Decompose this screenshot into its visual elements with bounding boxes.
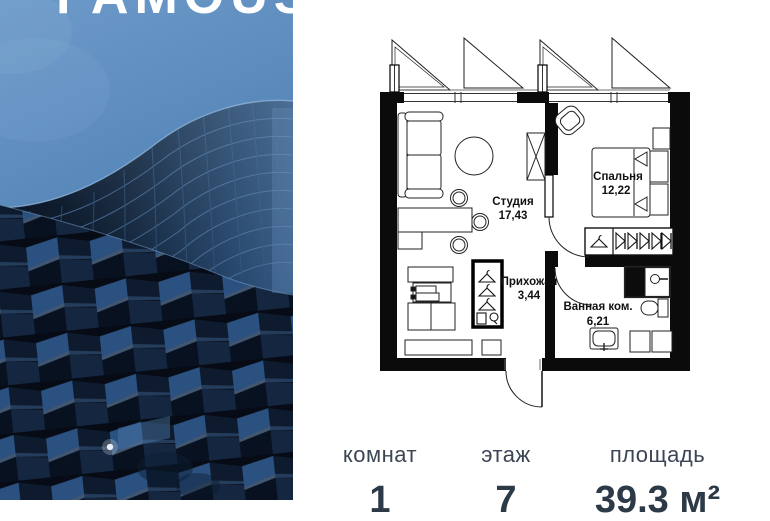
sun-glint [107, 444, 113, 450]
stat-area-value: 39.3 м² [570, 481, 745, 519]
room-label-bedroom: Спальня [593, 171, 643, 183]
toilet-tank [658, 299, 668, 317]
room-label-bath: Ванная ком. [563, 301, 632, 313]
studio-furniture [398, 112, 545, 254]
room-label-studio: Студия [492, 196, 533, 208]
stat-rooms-value: 1 [310, 481, 450, 519]
toilet [641, 301, 658, 315]
desk [398, 208, 472, 232]
kitchen-counter [405, 340, 472, 355]
stat-rooms: комнат 1 [310, 443, 450, 519]
hall-bench [482, 340, 501, 355]
building-photo: FAMOUS [0, 0, 293, 500]
entry-door [505, 359, 542, 407]
floor-plan: Студия 17,43 Спальня 12,22 Прихожая 3,44… [355, 25, 705, 445]
stat-area: площадь 39.3 м² [570, 443, 745, 519]
pocket-door [545, 175, 553, 217]
bedroom-furniture [552, 103, 670, 217]
bedroom-wardrobe [585, 228, 673, 255]
window-swing-triangles [390, 38, 670, 92]
stat-floor: этаж 7 [436, 443, 576, 519]
bathroom-door-arc [555, 268, 592, 305]
stat-floor-label: этаж [436, 443, 576, 467]
sofa [398, 113, 407, 197]
building-art [0, 0, 293, 500]
room-area-studio: 17,43 [499, 210, 528, 222]
room-area-bedroom: 12,22 [602, 185, 631, 197]
stat-rooms-label: комнат [310, 443, 450, 467]
room-area-bath: 6,21 [587, 316, 610, 328]
nightstand [650, 151, 668, 182]
round-table [455, 137, 493, 175]
stat-floor-value: 7 [436, 481, 576, 519]
stat-area-label: площадь [570, 443, 745, 467]
nightstand [650, 184, 668, 215]
room-area-hall: 3,44 [518, 290, 541, 302]
hall-closet [473, 261, 502, 327]
brand-logo: FAMOUS [56, 0, 293, 26]
room-label-hall: Прихожая [501, 276, 558, 288]
